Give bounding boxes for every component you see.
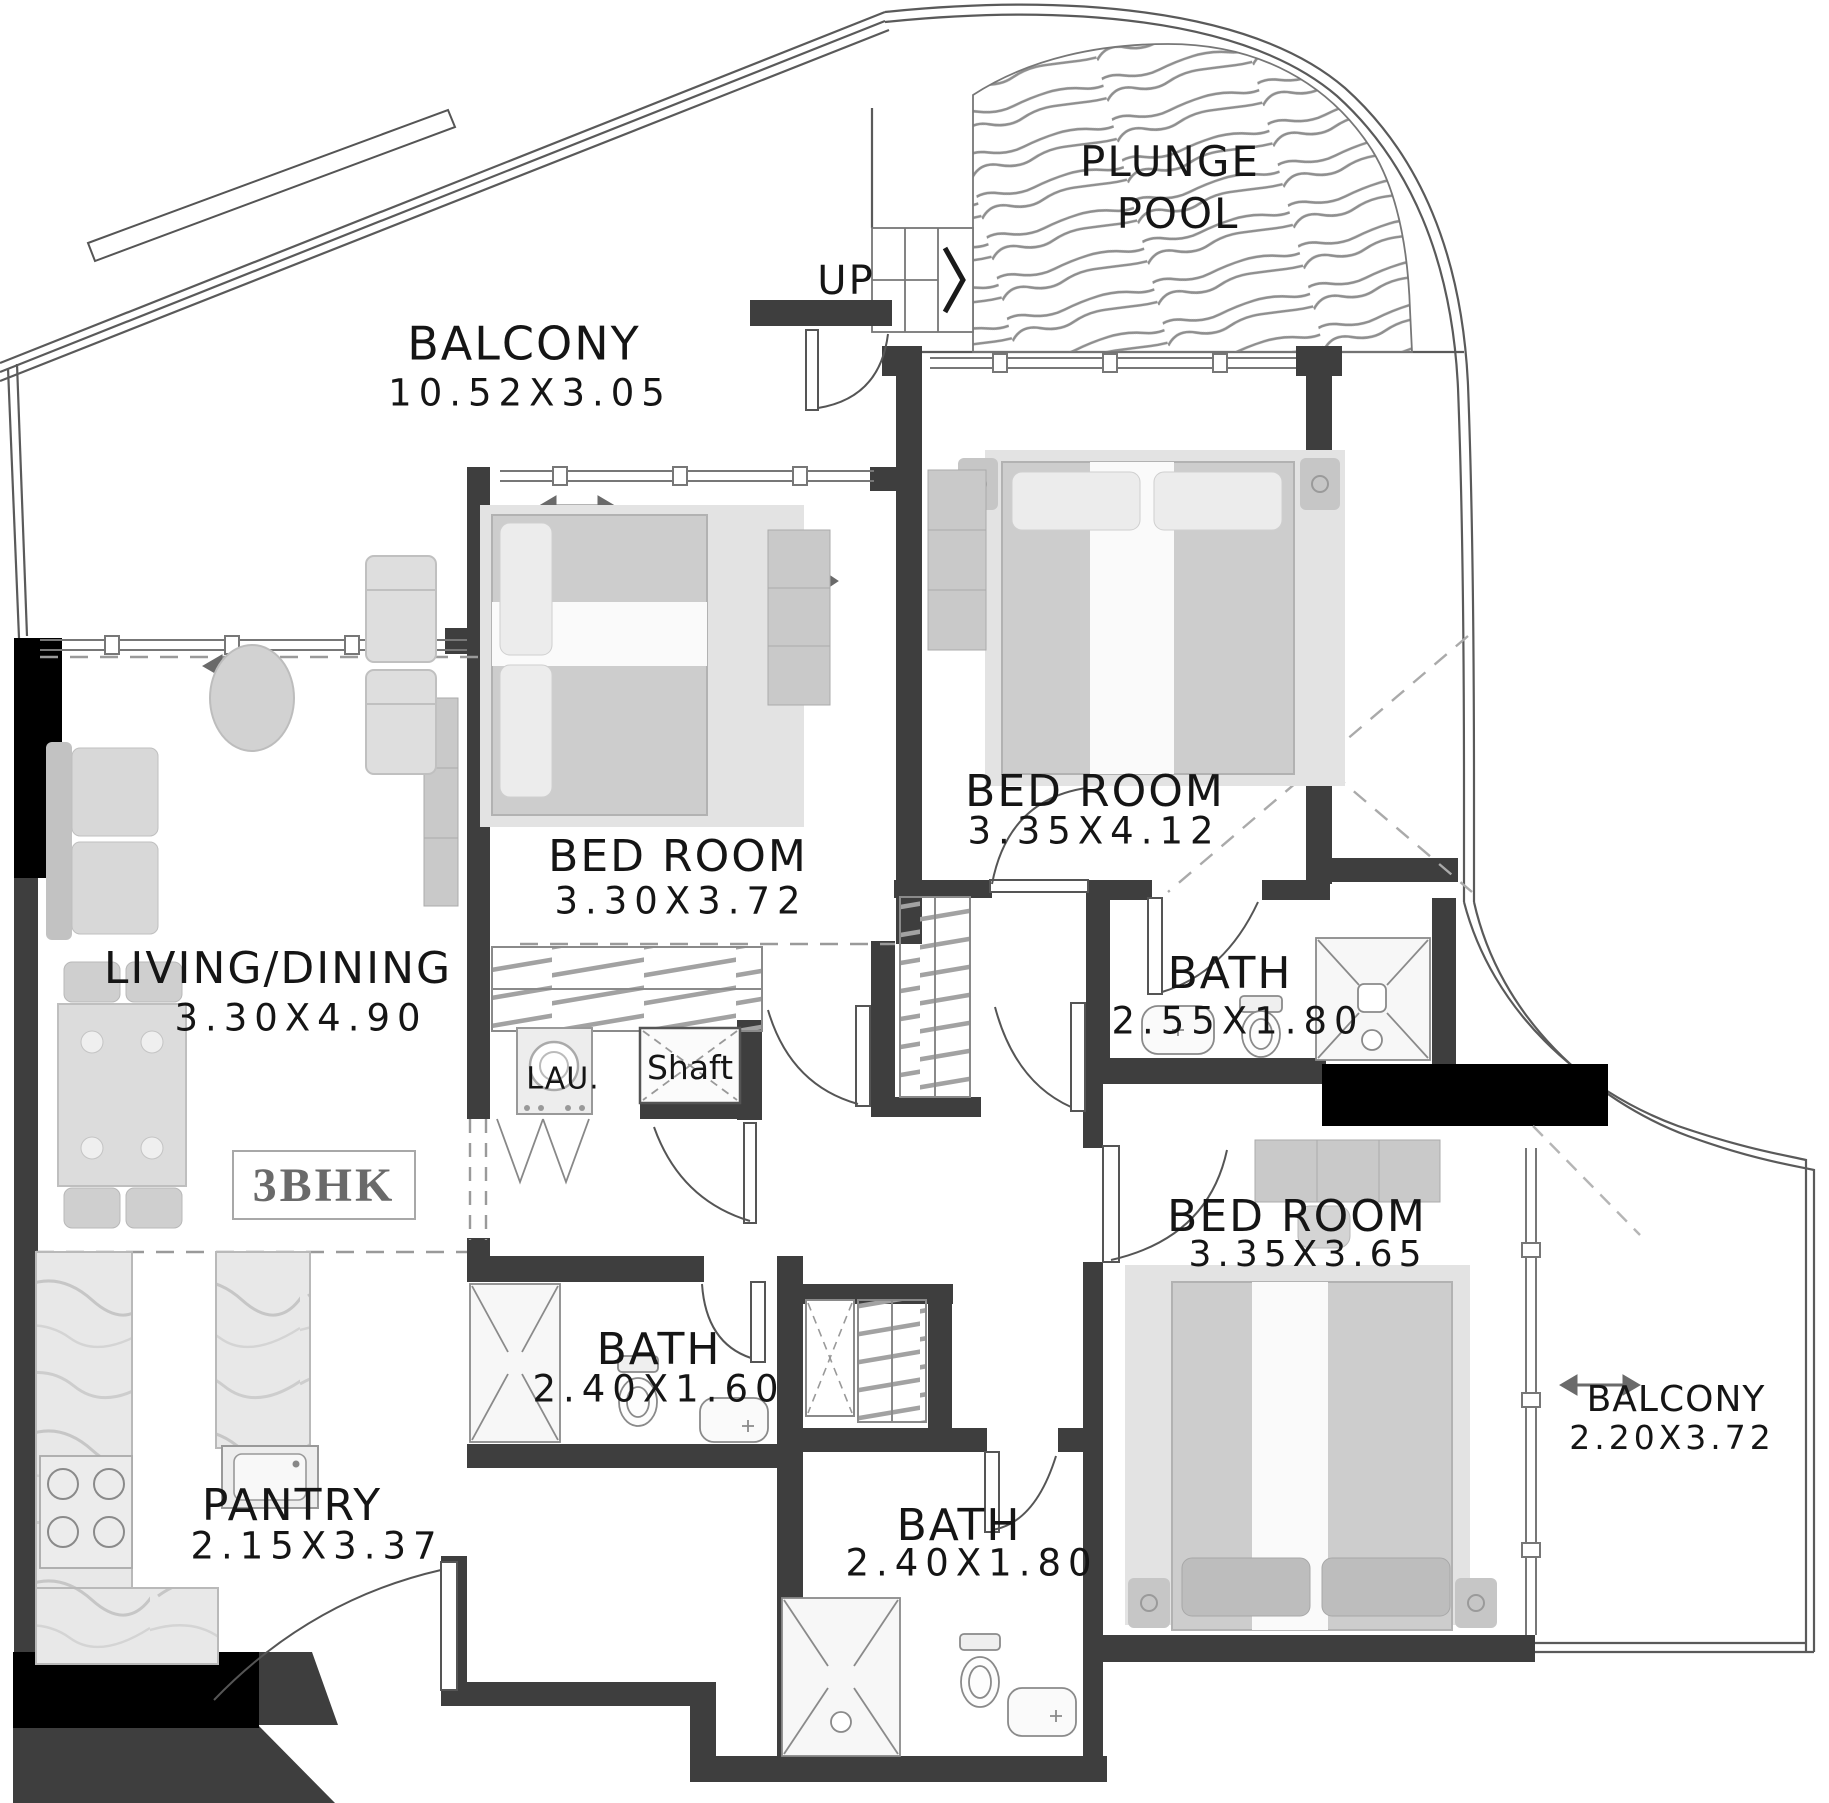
bedroom1-furniture bbox=[480, 505, 830, 827]
bedroom1-door-leaf bbox=[744, 1123, 756, 1223]
label-pantry-dims: 2.15X3.37 bbox=[190, 1527, 443, 1568]
label-bedroom-1-name: BED ROOM bbox=[548, 833, 808, 881]
label-living-dining-dims: 3.30X4.90 bbox=[174, 999, 427, 1040]
shower-head-icon bbox=[1362, 1030, 1382, 1050]
hall-door-right-leaf bbox=[1071, 1003, 1085, 1111]
label-balcony-right-dims: 2.20X3.72 bbox=[1569, 1420, 1775, 1456]
sofa-back bbox=[46, 742, 72, 940]
label-bedroom-2-dims: 3.35X4.12 bbox=[967, 812, 1220, 853]
unit-type-text: 3BHK bbox=[253, 1158, 396, 1213]
hall-door-left-arc bbox=[768, 1010, 858, 1104]
unit-type-badge: 3BHK bbox=[232, 1150, 416, 1220]
label-bath-2-dims: 2.40X1.60 bbox=[532, 1370, 785, 1411]
bath3-fixtures bbox=[782, 1598, 1076, 1756]
laundry-unit bbox=[497, 1028, 592, 1182]
floorplan-page: PLUNGE POOL UP BALCONY 10.52X3.05 BED RO… bbox=[0, 0, 1829, 1803]
bedroom1-door-arc bbox=[654, 1127, 750, 1221]
label-plunge-pool-line1: PLUNGE bbox=[1080, 136, 1260, 189]
label-plunge-pool-line2: POOL bbox=[1117, 188, 1240, 241]
sink-icon bbox=[1008, 1688, 1076, 1736]
label-pantry-name: PANTRY bbox=[202, 1482, 382, 1530]
label-shaft: Shaft bbox=[647, 1050, 733, 1086]
kitchen-counter bbox=[36, 1588, 218, 1664]
dining-chair bbox=[64, 1188, 120, 1228]
label-balcony-top-dims: 10.52X3.05 bbox=[388, 374, 672, 415]
bedroom2-furniture bbox=[928, 450, 1345, 786]
pantry-door-leaf bbox=[441, 1562, 457, 1690]
shower-head-icon bbox=[831, 1712, 851, 1732]
bedroom2-door-leaf bbox=[990, 880, 1088, 892]
label-bath-1-name: BATH bbox=[1168, 950, 1293, 998]
hall-door-right-arc bbox=[995, 1007, 1071, 1107]
label-living-dining-name: LIVING/DINING bbox=[104, 945, 452, 993]
label-laundry: LAU. bbox=[526, 1063, 599, 1096]
label-bedroom-3-dims: 3.35X3.65 bbox=[1189, 1235, 1428, 1275]
bifold-doors bbox=[497, 1119, 589, 1182]
label-bedroom-1-dims: 3.30X3.72 bbox=[554, 882, 807, 923]
label-up: UP bbox=[817, 259, 874, 303]
dining-table bbox=[58, 1004, 186, 1186]
bath2-door-leaf bbox=[751, 1282, 765, 1362]
balcony-door-leaf bbox=[806, 330, 818, 410]
lounge-chair bbox=[366, 670, 436, 774]
dresser bbox=[928, 470, 986, 650]
round-table bbox=[210, 645, 294, 751]
label-balcony-top-name: BALCONY bbox=[407, 319, 641, 370]
bath1-door-leaf bbox=[1148, 898, 1162, 994]
bedroom3-door-leaf bbox=[1103, 1146, 1119, 1262]
toilet-icon bbox=[961, 1657, 999, 1707]
closets bbox=[492, 897, 970, 1422]
label-balcony-right-name: BALCONY bbox=[1587, 1380, 1766, 1420]
label-bath-3-dims: 2.40X1.80 bbox=[845, 1544, 1098, 1585]
pantry-furniture bbox=[36, 1252, 318, 1664]
lounge-chair bbox=[366, 556, 436, 662]
desk bbox=[768, 530, 830, 705]
label-bath-1-dims: 2.55X1.80 bbox=[1111, 1002, 1364, 1043]
dining-chair bbox=[126, 1188, 182, 1228]
balcony-furniture bbox=[366, 556, 436, 774]
kitchen-island bbox=[216, 1252, 310, 1448]
hall-door-left-leaf bbox=[856, 1006, 870, 1106]
balcony-door-arc bbox=[818, 334, 888, 408]
